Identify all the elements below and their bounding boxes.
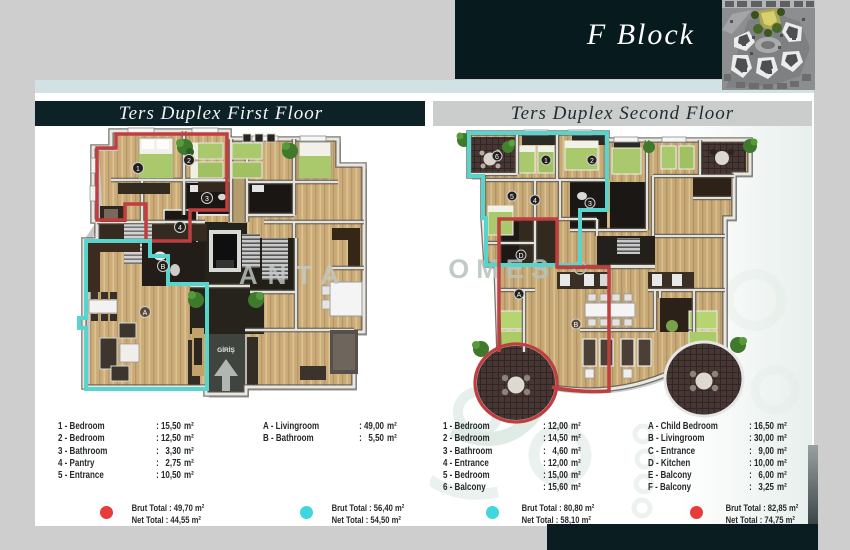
svg-text:3: 3 bbox=[588, 201, 592, 208]
svg-text:2: 2 bbox=[187, 158, 191, 165]
svg-text:GİRİŞ: GİRİŞ bbox=[217, 346, 235, 354]
svg-text:4: 4 bbox=[178, 225, 182, 232]
svg-text:6: 6 bbox=[495, 154, 499, 161]
svg-text:A: A bbox=[143, 310, 148, 317]
svg-text:5: 5 bbox=[510, 194, 514, 201]
svg-text:2: 2 bbox=[590, 158, 594, 165]
svg-text:1: 1 bbox=[136, 166, 140, 173]
svg-text:3: 3 bbox=[205, 196, 209, 203]
svg-text:B: B bbox=[161, 264, 166, 271]
svg-text:ANTA: ANTA bbox=[239, 260, 349, 290]
svg-text:OMES: OMES bbox=[448, 254, 556, 284]
svg-text:1: 1 bbox=[544, 158, 548, 165]
svg-text:A: A bbox=[517, 292, 522, 299]
svg-text:D: D bbox=[518, 253, 523, 260]
svg-text:4: 4 bbox=[533, 198, 537, 205]
svg-text:B: B bbox=[574, 322, 579, 329]
